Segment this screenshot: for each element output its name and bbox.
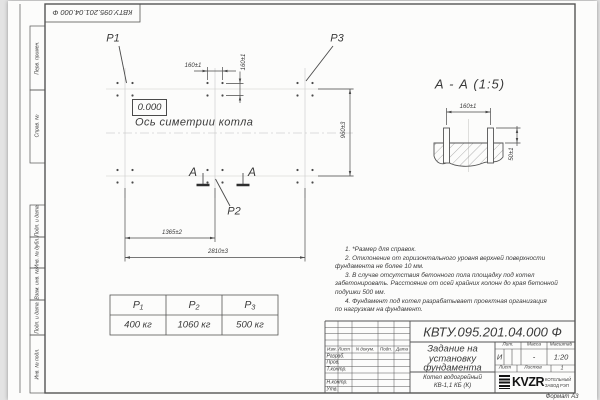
sidebar-label-perv-primen: Перв. примен. bbox=[35, 41, 40, 74]
doc-number: КВТУ.095.201.04.000 Ф bbox=[423, 325, 562, 338]
section-letter-right: А bbox=[248, 166, 256, 178]
sidebar-label-podp-data-1: Подп. и дата bbox=[35, 205, 40, 236]
note-line: забетонировать. Расстояние от осей крайн… bbox=[335, 280, 593, 289]
note-line: 2. Отклонение от горизонтального уровня … bbox=[335, 255, 593, 264]
sidebar-label-inv-podl: Инв. № подл. bbox=[35, 348, 40, 379]
load-table-header-p1: P₁ bbox=[133, 300, 143, 311]
note-line: 1. *Размер для справок. bbox=[335, 246, 593, 255]
sheets-value: 1 bbox=[560, 366, 563, 372]
note-line: фундамента не более 10 мм. bbox=[335, 263, 593, 272]
dim-2810: 2810±3 bbox=[208, 249, 228, 255]
load-table-header-p2: P₂ bbox=[188, 300, 199, 311]
row-label-prov: Пров. bbox=[327, 361, 340, 366]
lit-header: Лит. bbox=[502, 343, 513, 348]
section-dim-50: 50±1 bbox=[509, 147, 515, 160]
load-table-value-p2: 1060 кг bbox=[178, 320, 211, 330]
lit-value: И bbox=[497, 353, 502, 361]
kvzr-logo-text: KVZR bbox=[512, 375, 544, 389]
kvzr-logo-subtext1: КОТЕЛЬНЫЙ bbox=[545, 377, 571, 382]
load-table-header-p3: P₃ bbox=[244, 300, 255, 311]
sidebar-label-vzam-inv: Взам. инв. № bbox=[35, 269, 40, 300]
col-header-n-dokum: N докум. bbox=[356, 347, 375, 352]
col-header-izm-list: Изм. Лист bbox=[327, 347, 350, 352]
col-header-podp: Подп. bbox=[380, 347, 392, 352]
level-mark: 0.000 bbox=[132, 99, 167, 116]
mass-header: Масса bbox=[527, 343, 541, 348]
kvzr-logo-icon bbox=[499, 375, 510, 389]
doc-title-line3: фундамента bbox=[423, 363, 481, 373]
note-line: по нагрузкам на фундамент. bbox=[335, 306, 593, 315]
load-point-label-p1: P1 bbox=[106, 34, 119, 45]
note-line: 4. Фундамент под котел разрабатывает про… bbox=[335, 298, 593, 307]
note-line: подушки 500 мм. bbox=[335, 289, 593, 298]
kvzr-logo-subtext2: ЗАВОД РЭП bbox=[545, 383, 569, 388]
load-table-value-p1: 400 кг bbox=[124, 320, 152, 330]
sheet-label: Лист bbox=[499, 366, 511, 371]
sidebar-label-sprav-n: Справ. № bbox=[35, 115, 40, 138]
row-label-razrab: Разраб. bbox=[327, 354, 345, 359]
load-point-label-p2: P2 bbox=[227, 207, 240, 218]
section-letter-left: А bbox=[189, 166, 197, 178]
product-name-line2: КВ-1,1 КБ (К) bbox=[434, 382, 471, 388]
row-label-tkontr: Т.контр. bbox=[327, 367, 347, 372]
load-table-value-p3: 500 кг bbox=[236, 320, 264, 330]
notes-block: 1. *Размер для справок. 2. Отклонение от… bbox=[335, 246, 593, 315]
sidebar-label-inv-dubl: Инв. № дубл. bbox=[35, 237, 40, 268]
sidebar-label-podp-data-2: Подп. и дата bbox=[35, 302, 40, 333]
mass-value: - bbox=[533, 353, 536, 361]
dim-160-vertical: 160±1 bbox=[241, 54, 247, 71]
row-label-nkontr: Н.контр. bbox=[327, 381, 348, 386]
symmetry-axis-label: Ось симетрии котла bbox=[135, 118, 253, 129]
scale-value: 1:20 bbox=[554, 353, 569, 361]
section-dim-160: 160±1 bbox=[460, 104, 477, 110]
drawing-page: КВТУ.095.201.04.000 Ф Перв. примен. Спра… bbox=[0, 0, 600, 400]
format-label: Формат А3 bbox=[546, 394, 579, 400]
dim-160-horizontal: 160±1 bbox=[185, 63, 202, 69]
row-label-utv: Утв. bbox=[327, 387, 338, 392]
product-name-line1: Котел водогрейный bbox=[423, 375, 482, 381]
section-view bbox=[434, 108, 521, 172]
rotated-docnumber-stamp: КВТУ.095.201.04.000 Ф bbox=[45, 4, 140, 22]
dim-1365: 1365±2 bbox=[162, 230, 182, 236]
plan-axis-lines bbox=[106, 68, 354, 198]
col-header-data: Дата bbox=[396, 347, 408, 352]
load-point-label-p3: P3 bbox=[330, 34, 343, 45]
scale-header: Масштаб bbox=[550, 343, 572, 348]
drawing-linework bbox=[0, 0, 600, 400]
section-view-title: А - А (1:5) bbox=[435, 78, 505, 91]
dim-960: 960±3 bbox=[341, 122, 347, 139]
sheets-label: Листов bbox=[524, 366, 541, 371]
plan-dimension-lines bbox=[125, 67, 354, 262]
